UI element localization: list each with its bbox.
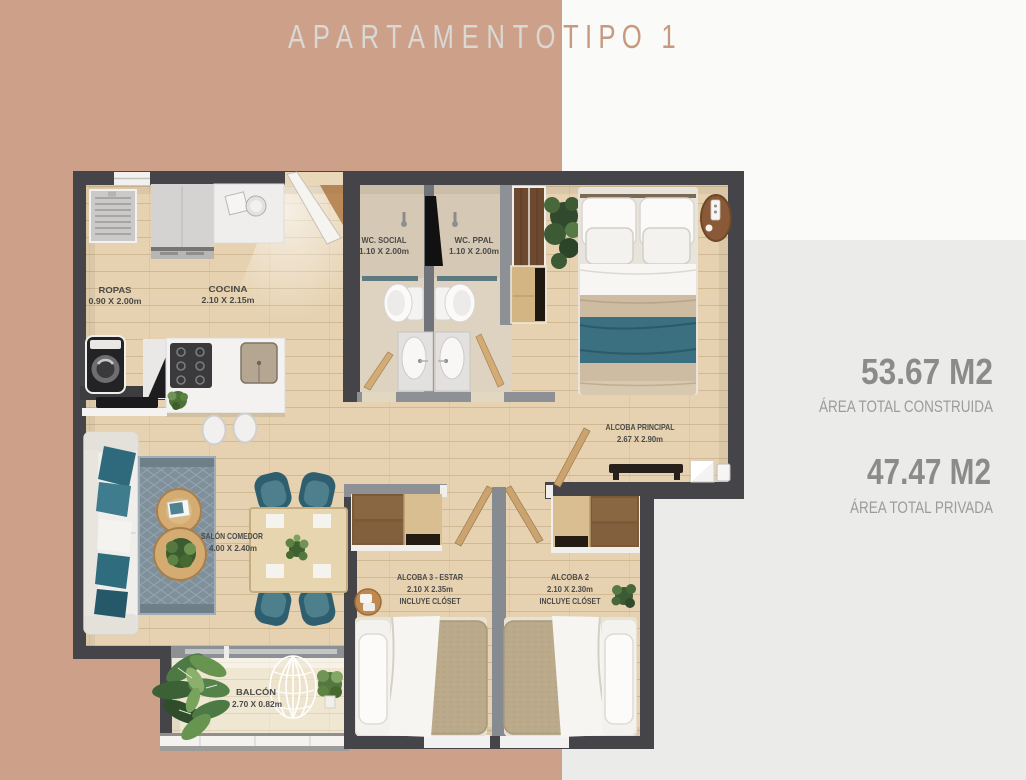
svg-text:INCLUYE CLÓSET: INCLUYE CLÓSET bbox=[400, 595, 462, 606]
svg-text:53.67 M2: 53.67 M2 bbox=[861, 351, 993, 392]
svg-text:2.10 X 2.35m: 2.10 X 2.35m bbox=[407, 584, 453, 594]
svg-text:1.10 X 2.00m: 1.10 X 2.00m bbox=[449, 246, 499, 256]
svg-text:WC. SOCIAL: WC. SOCIAL bbox=[362, 235, 407, 245]
svg-text:WC. PPAL: WC. PPAL bbox=[455, 235, 494, 245]
svg-text:2.70 X 0.82m: 2.70 X 0.82m bbox=[232, 699, 282, 709]
svg-text:1.10 X 2.00m: 1.10 X 2.00m bbox=[359, 246, 409, 256]
svg-text:ÁREA TOTAL PRIVADA: ÁREA TOTAL PRIVADA bbox=[850, 498, 994, 517]
svg-text:ÁREA TOTAL CONSTRUIDA: ÁREA TOTAL CONSTRUIDA bbox=[819, 397, 994, 416]
svg-text:TIPO 1: TIPO 1 bbox=[563, 19, 682, 56]
svg-text:COCINA: COCINA bbox=[209, 284, 248, 294]
svg-text:2.10 X 2.30m: 2.10 X 2.30m bbox=[547, 584, 593, 594]
svg-text:ROPAS: ROPAS bbox=[99, 285, 132, 295]
svg-text:BALCÓN: BALCÓN bbox=[236, 686, 276, 697]
svg-text:2.67 X 2.90m: 2.67 X 2.90m bbox=[617, 434, 663, 444]
svg-text:ALCOBA PRINCIPAL: ALCOBA PRINCIPAL bbox=[606, 422, 675, 432]
svg-text:0.90 X 2.00m: 0.90 X 2.00m bbox=[89, 296, 142, 306]
svg-text:SALÓN COMEDOR: SALÓN COMEDOR bbox=[201, 530, 263, 541]
svg-text:47.47 M2: 47.47 M2 bbox=[867, 451, 991, 492]
svg-text:ALCOBA 3 - ESTAR: ALCOBA 3 - ESTAR bbox=[397, 572, 463, 582]
svg-text:4.00 X 2.40m: 4.00 X 2.40m bbox=[209, 543, 257, 553]
svg-text:APARTAMENTO: APARTAMENTO bbox=[288, 19, 563, 56]
svg-text:2.10 X 2.15m: 2.10 X 2.15m bbox=[202, 295, 255, 305]
svg-text:ALCOBA 2: ALCOBA 2 bbox=[551, 572, 589, 582]
svg-text:INCLUYE CLÓSET: INCLUYE CLÓSET bbox=[540, 595, 602, 606]
